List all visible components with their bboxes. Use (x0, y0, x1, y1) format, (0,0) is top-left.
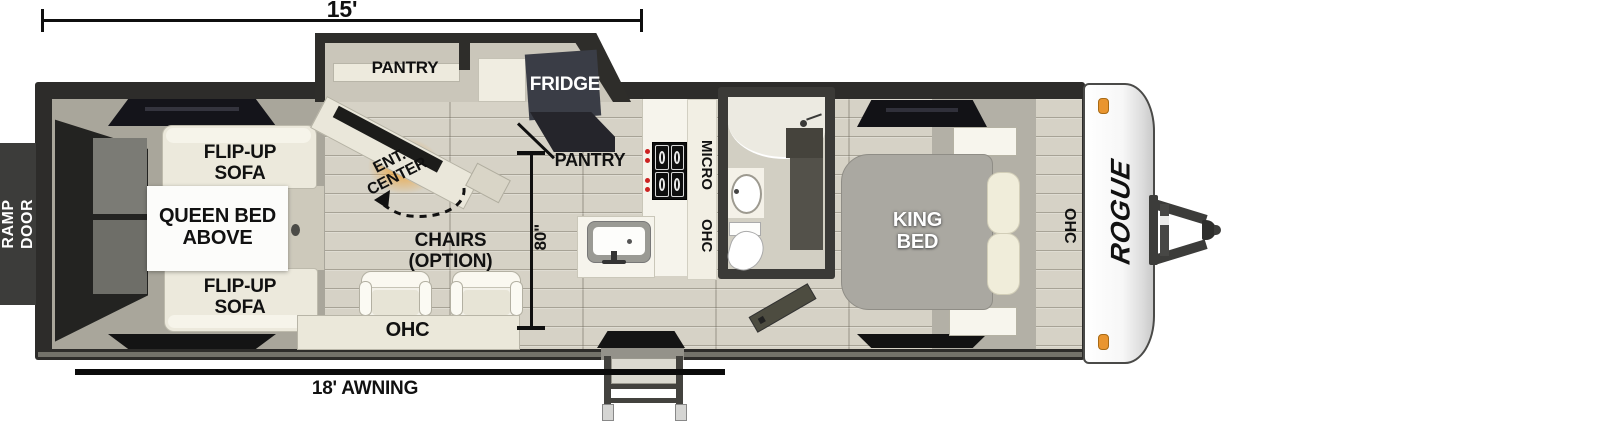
bath-cabinet-upper (786, 128, 823, 158)
ramp-door-flap: RAMP DOOR (0, 143, 36, 305)
stove-knob-2 (645, 158, 650, 163)
flip-up-sofa-bottom-label: FLIP-UP SOFA (166, 277, 314, 318)
body-bottom-stripe (38, 352, 1082, 357)
stove-knob-3 (645, 178, 650, 183)
shower-head-icon (800, 120, 807, 127)
garage-mat-top (108, 99, 276, 126)
pillow-top (987, 172, 1020, 234)
garage-mat-top-vent (145, 107, 239, 111)
burner (671, 172, 685, 197)
sink-faucet-bar (602, 260, 626, 264)
bathroom-door-handle (758, 316, 766, 324)
bath-faucet (734, 189, 739, 194)
step-rung-2 (604, 398, 683, 403)
stove-cooktop (652, 142, 687, 200)
awning-line (75, 369, 725, 375)
slideout-pantry-label: PANTRY (350, 59, 460, 77)
step-foot-right (675, 404, 687, 421)
step-foot-left (602, 404, 614, 421)
bath-sink (731, 174, 762, 214)
hitch-jack (1160, 204, 1169, 256)
dim-15ft-label: 15' (297, 0, 387, 22)
chairs-option-label: CHAIRS (OPTION) (398, 231, 503, 272)
sink-basin (593, 227, 645, 255)
kitchen-pantry-label: PANTRY (540, 151, 640, 170)
chair-right-seat (463, 290, 510, 315)
chair-right (452, 271, 521, 319)
sink-drain (627, 239, 632, 244)
pillow-bottom (987, 233, 1020, 295)
bedroom-mat-bottom (857, 334, 987, 348)
fridge-label: FRIDGE (522, 75, 608, 96)
bedroom-ohc-label: OHC (1052, 200, 1078, 252)
nightstand-bottom (949, 307, 1017, 336)
garage-door-handle (291, 224, 300, 236)
tv-swivel-arc (362, 183, 474, 227)
garage-mat-bottom (108, 334, 276, 349)
ramp-window-lower (93, 220, 147, 294)
chair-left-arm-b (419, 281, 432, 316)
kitchen-ohc-label: OHC (687, 208, 715, 263)
floorplan-canvas: 15' FLIP-UP SOFA FLIP-UP SOFA QUEEN BED … (0, 0, 1600, 424)
sofa-top-armrest (166, 128, 311, 143)
chair-right-arm-b (510, 281, 523, 316)
nightstand-top (953, 127, 1017, 156)
stove-knob-1 (645, 149, 650, 154)
fridge-side-cabinet (478, 58, 526, 102)
entry-mat (597, 331, 685, 348)
dim-80in-tick-bottom (517, 326, 545, 330)
micro-label: MICRO (687, 130, 715, 200)
hitch-jack-band (1160, 216, 1169, 225)
slideout-divider-wall (459, 40, 470, 70)
marker-light-top (1098, 98, 1109, 114)
bedroom-mat-top-vent (886, 108, 959, 112)
ramp-door-label: RAMP DOOR (0, 199, 37, 249)
ramp-window-upper (93, 138, 147, 214)
living-ohc-label: OHC (297, 320, 518, 342)
burner (655, 172, 669, 197)
step-rung-1 (604, 384, 683, 389)
chair-left (361, 271, 430, 319)
marker-light-bottom (1098, 334, 1109, 350)
bedroom-mat-top (857, 100, 987, 127)
burner (671, 145, 685, 170)
stove-knob-4 (645, 187, 650, 192)
flip-up-sofa-top-label: FLIP-UP SOFA (166, 143, 314, 184)
hitch-coupler-tip (1214, 225, 1221, 235)
queen-bed-label: QUEEN BED ABOVE (147, 206, 288, 249)
burner (655, 145, 669, 170)
dim-15ft-tick-right (640, 9, 643, 32)
chair-right-arm-a (450, 281, 463, 316)
rogue-logo: ROGUE (1106, 176, 1135, 266)
chair-left-seat (372, 290, 419, 315)
chair-left-arm-a (359, 281, 372, 316)
bath-cabinet (790, 158, 823, 250)
king-bed-label: KING BED (855, 210, 980, 253)
dim-15ft-tick-left (41, 9, 44, 32)
awning-label: 18' AWNING (270, 379, 460, 400)
dim-80in-label: 80" (532, 217, 550, 257)
kitchen-sink (587, 221, 651, 263)
